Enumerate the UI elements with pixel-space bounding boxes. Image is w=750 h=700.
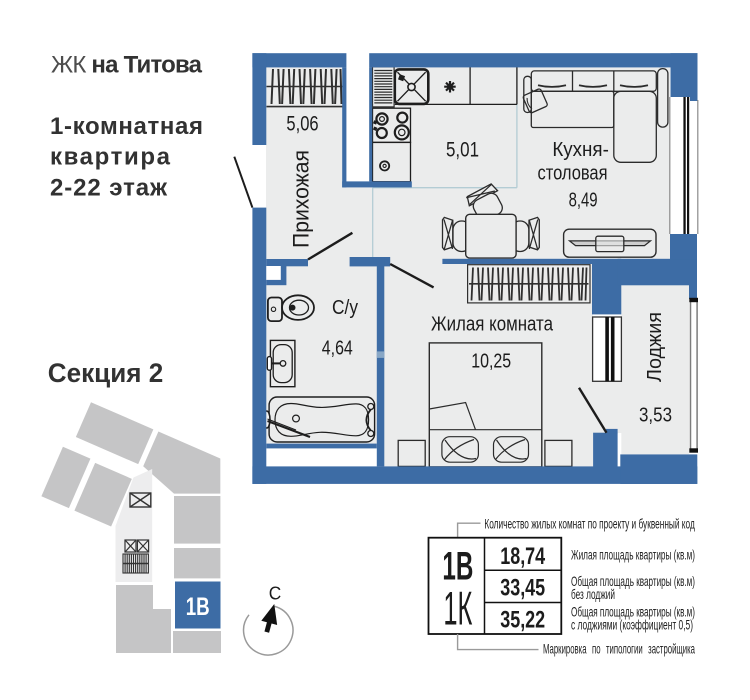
svg-text:1-комнатная: 1-комнатная (50, 113, 203, 140)
svg-text:ЖК на Титова: ЖК на Титова (51, 52, 203, 79)
svg-text:Жилая площадь квартиры (кв.м): Жилая площадь квартиры (кв.м) (571, 547, 695, 563)
svg-text:с лоджиями (коэффициент 0,5): с лоджиями (коэффициент 0,5) (571, 616, 693, 632)
svg-text:1К: 1К (443, 582, 472, 635)
svg-text:Прихожая: Прихожая (289, 150, 314, 248)
svg-text:Лоджия: Лоджия (644, 312, 666, 382)
svg-text:Кухня-: Кухня- (552, 139, 609, 161)
svg-text:1В: 1В (186, 593, 210, 621)
svg-text:Секция 2: Секция 2 (48, 358, 163, 388)
svg-text:5,01: 5,01 (446, 138, 479, 161)
svg-text:столовая: столовая (538, 162, 608, 184)
svg-text:Количество жилых комнат по про: Количество жилых комнат по проекту и бук… (484, 516, 694, 532)
svg-text:С/у: С/у (332, 297, 358, 319)
svg-text:10,25: 10,25 (471, 351, 511, 373)
svg-text:без лоджий: без лоджий (571, 586, 615, 602)
svg-text:Жилая комната: Жилая комната (431, 314, 554, 336)
svg-text:18,74: 18,74 (500, 543, 545, 570)
svg-text:квартира: квартира (50, 144, 171, 171)
svg-text:С: С (269, 584, 282, 604)
svg-text:Маркировка по типологии застро: Маркировка по типологии застройщика (543, 641, 695, 657)
svg-text:8,49: 8,49 (569, 189, 598, 211)
svg-text:5,06: 5,06 (286, 112, 318, 135)
svg-text:2-22 этаж: 2-22 этаж (50, 174, 168, 201)
svg-text:3,53: 3,53 (639, 405, 672, 427)
svg-text:4,64: 4,64 (322, 338, 353, 360)
svg-text:35,22: 35,22 (500, 607, 545, 634)
svg-text:33,45: 33,45 (500, 575, 545, 602)
